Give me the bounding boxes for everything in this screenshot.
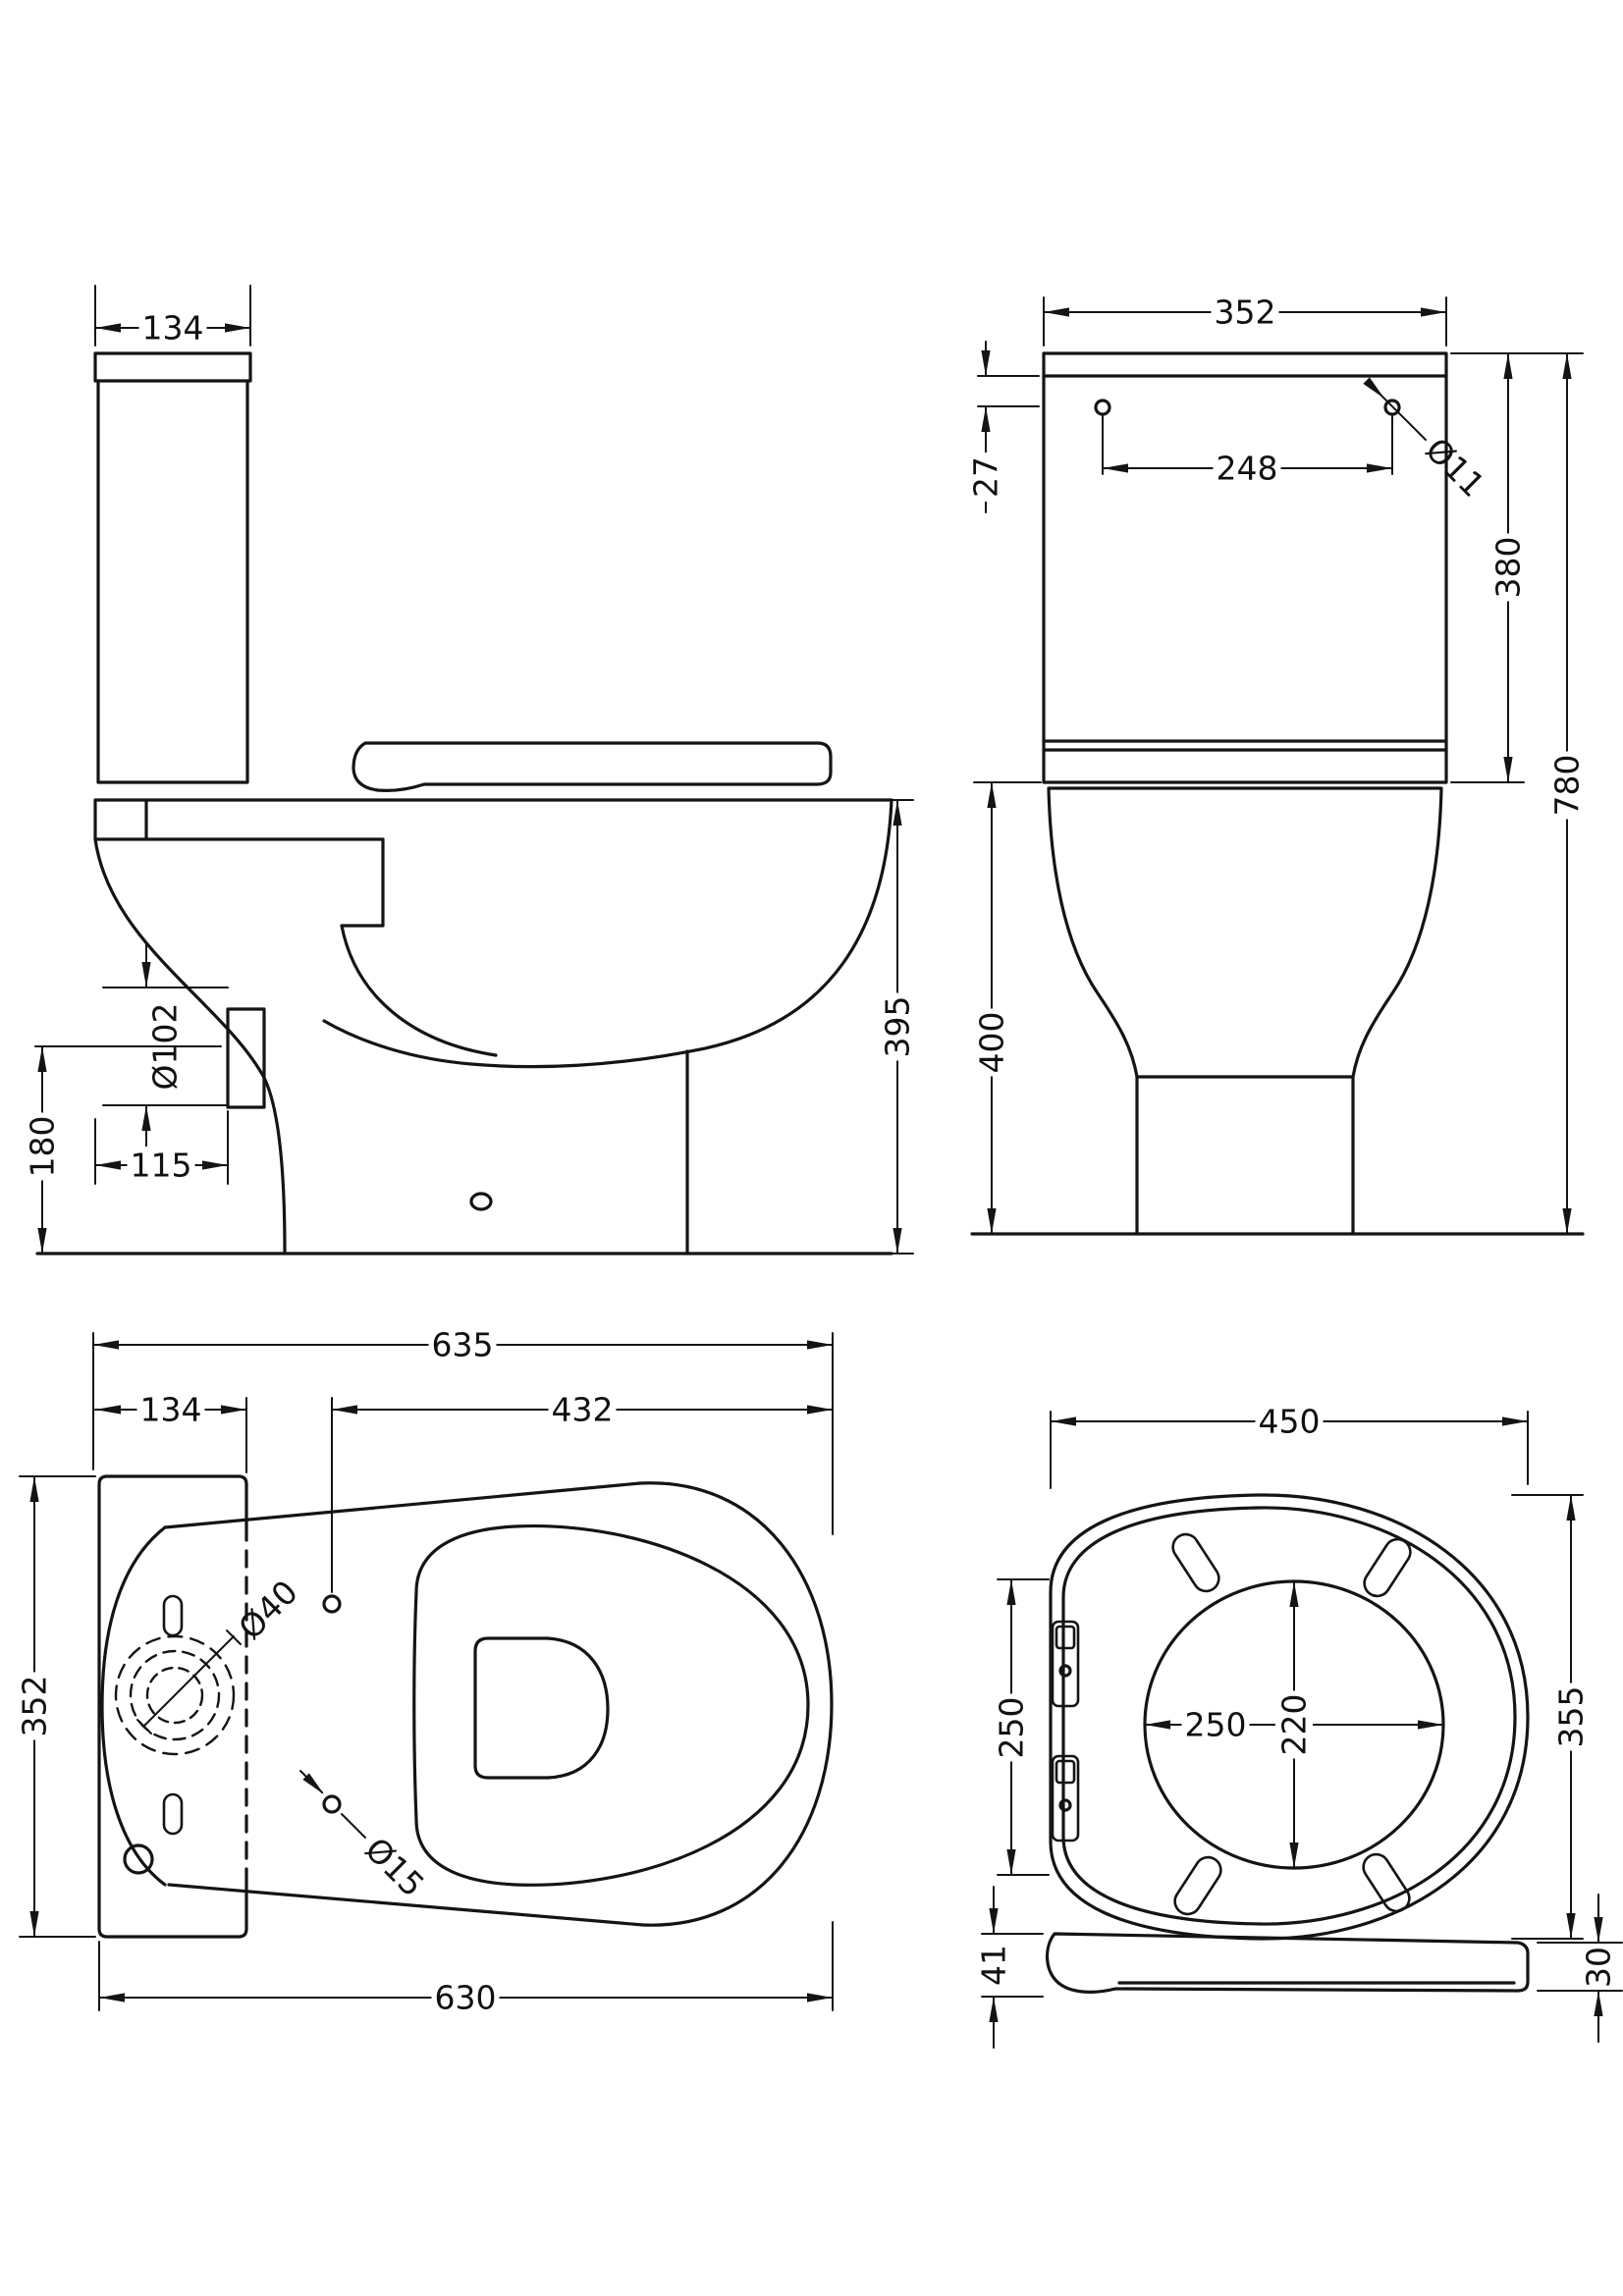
dim-label: 27: [967, 456, 1005, 498]
dim-label: 134: [142, 309, 204, 347]
dim-label: 432: [552, 1391, 614, 1429]
dim-label: 352: [1215, 294, 1276, 332]
dim-label: 352: [16, 1676, 54, 1737]
dim-label: 400: [973, 1012, 1011, 1074]
dim-label: Ø102: [146, 1003, 185, 1091]
dim-label: 630: [435, 1979, 497, 2017]
dim-label: 134: [140, 1391, 202, 1429]
dim-label: 250: [1185, 1706, 1247, 1744]
dim-label: 30: [1580, 1947, 1618, 1988]
dim-label: 355: [1552, 1686, 1591, 1748]
drawing-background: [0, 0, 1623, 2296]
drawing-canvas: 134395180Ø10211535227248Ø113807804006351…: [0, 0, 1623, 2296]
dim-label: 780: [1548, 755, 1587, 817]
dim-label: 220: [1275, 1694, 1314, 1756]
technical-drawing: 134395180Ø10211535227248Ø113807804006351…: [0, 0, 1623, 2296]
dim-label: 395: [879, 996, 917, 1058]
dim-label: 41: [975, 1945, 1013, 1986]
dim-label: 380: [1489, 537, 1528, 599]
dim-label: 635: [432, 1326, 494, 1364]
dim-label: 115: [131, 1147, 192, 1185]
dim-label: 450: [1259, 1403, 1321, 1441]
dim-label: 248: [1217, 450, 1278, 488]
dim-label: 250: [993, 1697, 1031, 1759]
dim-label: 180: [24, 1116, 62, 1178]
drawing-page: 134395180Ø10211535227248Ø113807804006351…: [0, 0, 1623, 2296]
